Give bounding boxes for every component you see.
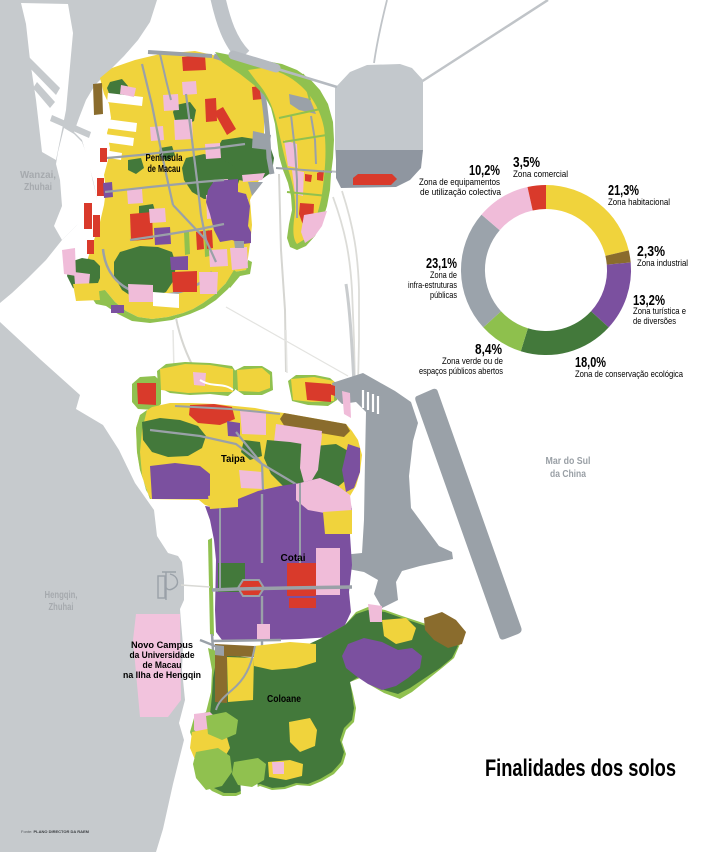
svg-text:Hengqin,: Hengqin, [45,589,78,601]
svg-text:da China: da China [550,468,586,480]
svg-text:de utilização colectiva: de utilização colectiva [420,187,502,198]
svg-text:Zhuhai: Zhuhai [24,181,52,193]
svg-text:Zona industrial: Zona industrial [637,258,688,269]
svg-text:Wanzai,: Wanzai, [20,169,56,181]
svg-text:Mar do Sul: Mar do Sul [546,455,591,467]
svg-text:da Universidade: da Universidade [130,650,195,660]
svg-text:Zona de conservação ecológica: Zona de conservação ecológica [575,369,684,380]
svg-text:de Macau: de Macau [143,660,182,670]
svg-text:Zhuhai: Zhuhai [49,601,74,613]
svg-text:Novo Campus: Novo Campus [131,640,193,650]
svg-text:públicas: públicas [430,290,457,301]
svg-text:na Ilha de Hengqin: na Ilha de Hengqin [123,670,201,680]
svg-text:Coloane: Coloane [267,693,301,705]
svg-text:Taipa: Taipa [221,453,245,465]
svg-text:Cotai: Cotai [281,552,306,564]
svg-text:Fonte: PLANO DIRECTOR DA RAEM: Fonte: PLANO DIRECTOR DA RAEM [21,829,90,834]
svg-text:espaços públicos abertos: espaços públicos abertos [419,366,503,377]
svg-text:de diversões: de diversões [633,316,676,327]
svg-text:de Macau: de Macau [148,163,181,175]
svg-text:Zona habitacional: Zona habitacional [608,197,670,208]
svg-text:Zona comercial: Zona comercial [513,169,568,180]
svg-text:Finalidades dos solos: Finalidades dos solos [485,755,676,782]
